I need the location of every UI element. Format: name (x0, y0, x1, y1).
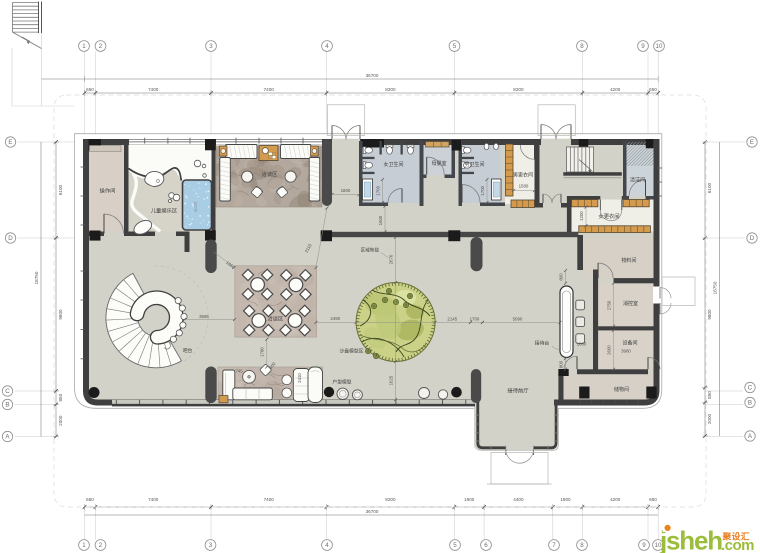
svg-text:女更衣间: 女更衣间 (598, 212, 619, 220)
svg-text:9: 9 (641, 43, 645, 50)
svg-text:9800: 9800 (707, 309, 712, 320)
svg-text:B: B (748, 400, 752, 407)
svg-text:9: 9 (642, 542, 646, 549)
svg-text:C: C (748, 385, 753, 392)
svg-text:1600: 1600 (378, 215, 383, 225)
svg-text:沙盘模型区: 沙盘模型区 (340, 348, 364, 355)
svg-text:1200: 1200 (579, 211, 584, 221)
svg-text:6: 6 (484, 542, 488, 549)
svg-text:2000: 2000 (707, 413, 712, 424)
svg-text:3980: 3980 (621, 349, 631, 354)
svg-text:36700: 36700 (366, 509, 379, 514)
svg-text:4400: 4400 (513, 497, 524, 502)
svg-text:1800: 1800 (577, 342, 587, 347)
svg-text:男卫生间: 男卫生间 (464, 161, 484, 168)
svg-text:区域地毯: 区域地毯 (361, 246, 380, 252)
svg-text:.com: .com (721, 537, 754, 553)
svg-text:7400: 7400 (148, 497, 159, 502)
svg-text:3595: 3595 (199, 314, 209, 319)
svg-text:3: 3 (209, 43, 213, 50)
svg-text:850: 850 (707, 391, 712, 399)
svg-text:2: 2 (99, 43, 103, 50)
svg-text:8200: 8200 (385, 87, 396, 92)
svg-text:1800: 1800 (341, 188, 351, 193)
svg-text:2145: 2145 (447, 317, 457, 322)
svg-text:8200: 8200 (513, 87, 524, 92)
svg-text:5090: 5090 (513, 317, 523, 322)
svg-text:5: 5 (453, 542, 457, 549)
svg-text:2600: 2600 (606, 345, 611, 355)
svg-text:6100: 6100 (58, 184, 63, 195)
svg-text:1700: 1700 (480, 185, 485, 195)
svg-text:物料间: 物料间 (621, 257, 636, 264)
svg-text:1900: 1900 (560, 497, 571, 502)
svg-text:10: 10 (656, 43, 663, 50)
svg-text:储物间: 储物间 (614, 386, 629, 393)
svg-text:E: E (8, 139, 12, 146)
svg-text:设备间: 设备间 (622, 340, 637, 347)
svg-text:接待台: 接待台 (535, 339, 550, 346)
svg-text:B: B (5, 402, 9, 409)
svg-text:儿童娱乐区: 儿童娱乐区 (151, 207, 178, 215)
svg-text:4: 4 (325, 43, 329, 50)
svg-text:1625: 1625 (388, 375, 393, 385)
svg-text:1700: 1700 (470, 317, 480, 322)
svg-text:母婴室: 母婴室 (431, 160, 446, 167)
svg-text:850: 850 (58, 393, 63, 401)
svg-text:4200: 4200 (610, 87, 621, 92)
svg-text:745: 745 (235, 369, 243, 374)
svg-text:18750: 18750 (34, 271, 39, 284)
svg-text:洽谈区: 洽谈区 (267, 314, 284, 322)
svg-text:2000: 2000 (58, 415, 63, 426)
svg-text:洽谈区: 洽谈区 (262, 170, 279, 178)
svg-text:18750: 18750 (713, 281, 718, 294)
svg-text:7400: 7400 (264, 497, 275, 502)
svg-text:8: 8 (580, 43, 584, 50)
svg-text:操作间: 操作间 (100, 187, 116, 195)
svg-text:650: 650 (86, 497, 94, 502)
svg-text:户型模型: 户型模型 (332, 379, 351, 386)
svg-text:4: 4 (325, 542, 329, 549)
svg-text:8200: 8200 (385, 497, 396, 502)
svg-text:1780: 1780 (260, 347, 265, 357)
svg-text:消控室: 消控室 (623, 300, 638, 307)
svg-text:3: 3 (209, 542, 213, 549)
svg-text:吧台: 吧台 (183, 347, 193, 354)
svg-text:清洁间: 清洁间 (630, 176, 645, 183)
svg-text:男更衣间: 男更衣间 (513, 172, 533, 179)
svg-text:800: 800 (559, 273, 564, 281)
svg-text:5: 5 (453, 43, 457, 50)
svg-text:1900: 1900 (464, 497, 475, 502)
svg-text:2: 2 (99, 542, 103, 549)
svg-text:D: D (8, 235, 13, 242)
svg-text:1: 1 (82, 43, 86, 50)
svg-text:2490: 2490 (330, 316, 340, 321)
svg-text:2750: 2750 (606, 300, 611, 310)
svg-text:E: E (750, 139, 754, 146)
svg-text:650: 650 (649, 497, 657, 502)
svg-text:800: 800 (559, 360, 564, 368)
svg-text:36700: 36700 (366, 73, 379, 78)
svg-text:6100: 6100 (707, 182, 712, 193)
svg-text:7400: 7400 (148, 87, 159, 92)
svg-text:9800: 9800 (58, 309, 63, 320)
svg-text:4200: 4200 (610, 497, 621, 502)
svg-text:2670: 2670 (388, 254, 393, 264)
svg-text:1700: 1700 (375, 185, 380, 195)
svg-text:1: 1 (82, 542, 86, 549)
svg-text:650: 650 (86, 87, 94, 92)
svg-text:接待前厅: 接待前厅 (507, 387, 529, 395)
svg-text:7: 7 (552, 542, 556, 549)
svg-text:C: C (5, 388, 10, 395)
svg-text:650: 650 (649, 87, 657, 92)
svg-text:1580: 1580 (519, 184, 529, 189)
svg-text:女卫生间: 女卫生间 (383, 161, 403, 168)
svg-text:7400: 7400 (264, 87, 275, 92)
svg-text:2410: 2410 (297, 373, 302, 383)
svg-text:8: 8 (580, 542, 584, 549)
svg-text:海洋球: 海洋球 (193, 201, 198, 212)
svg-text:D: D (750, 235, 755, 242)
